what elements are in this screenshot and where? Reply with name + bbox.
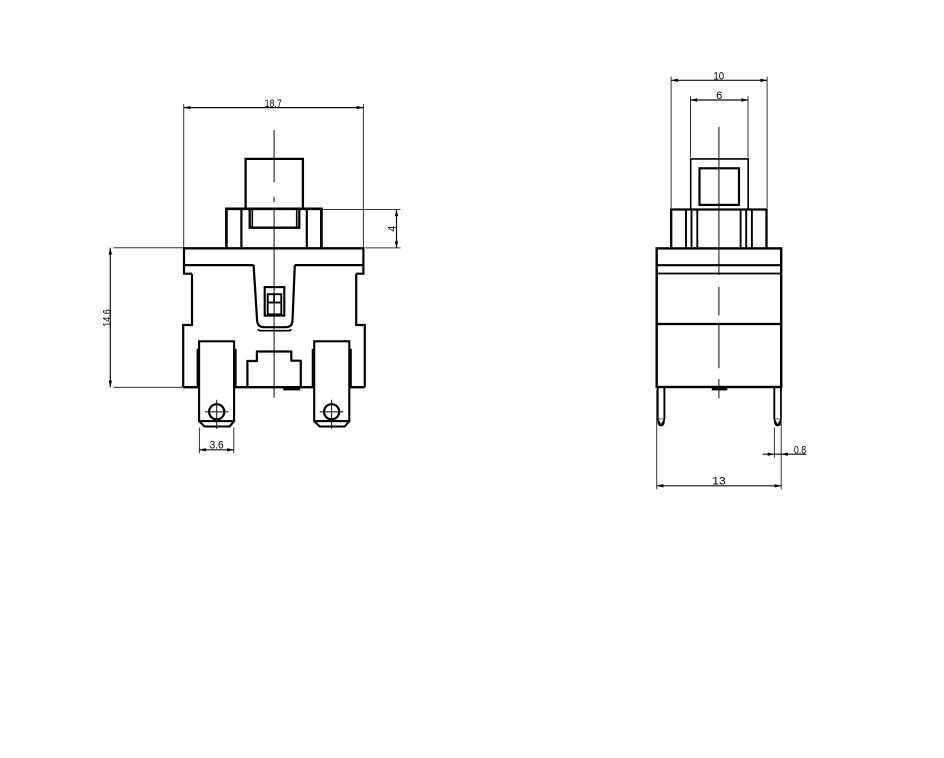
svg-text:13: 13 bbox=[712, 475, 726, 487]
svg-text:0.8: 0.8 bbox=[794, 444, 806, 456]
svg-text:6: 6 bbox=[716, 90, 722, 102]
svg-text:4: 4 bbox=[387, 226, 399, 232]
svg-text:3.6: 3.6 bbox=[210, 440, 224, 452]
svg-text:10: 10 bbox=[713, 71, 724, 83]
svg-text:14.6: 14.6 bbox=[102, 309, 114, 327]
svg-text:18.7: 18.7 bbox=[265, 98, 282, 110]
